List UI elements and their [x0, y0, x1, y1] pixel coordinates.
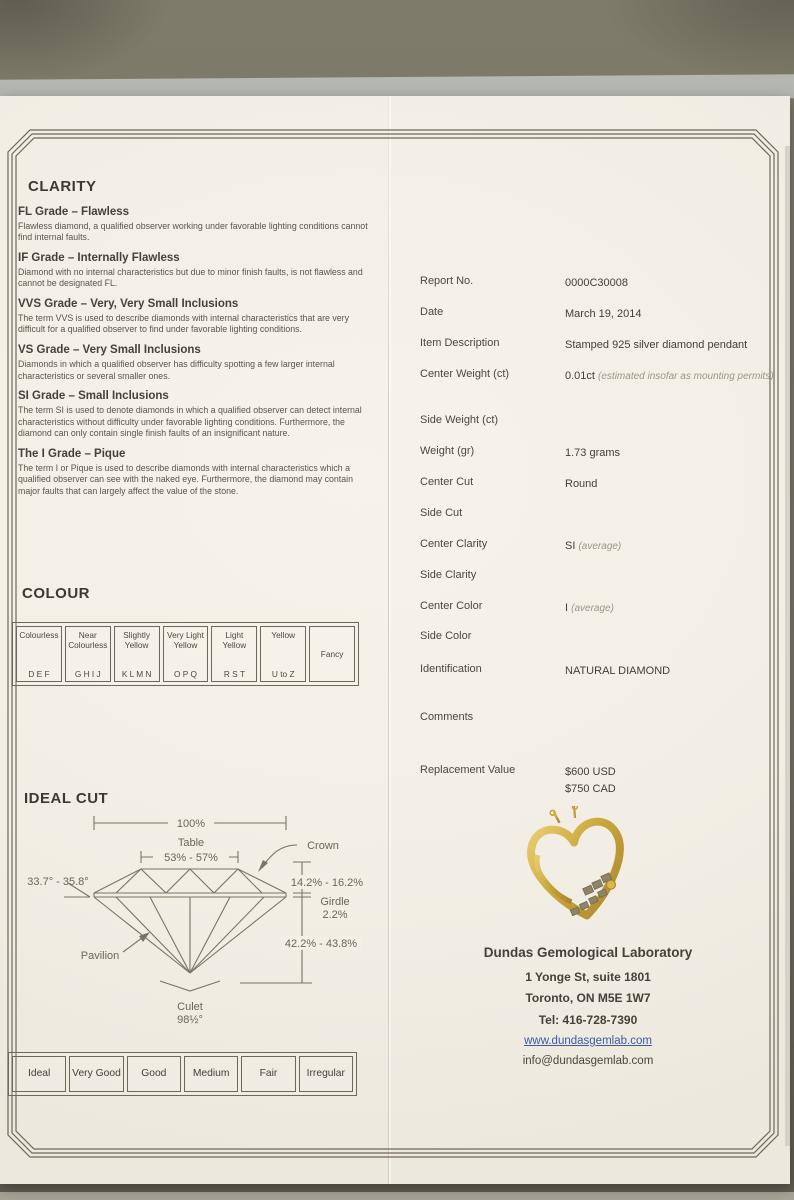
row-value: I (average) — [565, 600, 780, 617]
colour-cell-label: Fancy — [321, 649, 344, 659]
culet-angle-label: 98½° — [177, 1014, 203, 1026]
lab-contact-block: Dundas Gemological Laboratory 1 Yonge St… — [420, 945, 756, 1071]
colour-cell-very-light-yellow: Very Light Yellow O P Q — [163, 626, 209, 682]
grade-fl: FL Grade – Flawless Flawless diamond, a … — [18, 205, 376, 244]
colour-cell-label: Light Yellow — [213, 630, 255, 651]
cut-grade-irregular: Irregular — [299, 1056, 353, 1092]
paper-right-edge — [785, 146, 790, 1146]
colour-cell-label: Slightly Yellow — [116, 630, 158, 651]
colour-cell-letters: K L M N — [122, 668, 152, 679]
crown-height-label: 14.2% - 16.2% — [291, 877, 363, 889]
lab-phone: Tel: 416-728-7390 — [420, 1010, 756, 1031]
cut-grade-very-good: Very Good — [69, 1056, 123, 1092]
row-label: Weight (gr) — [420, 445, 562, 457]
row-label: Comments — [420, 711, 562, 723]
crown-angle-label: 33.7° - 35.8° — [27, 876, 88, 888]
grade-si: SI Grade – Small Inclusions The term SI … — [18, 389, 376, 440]
colour-heading: COLOUR — [22, 585, 90, 602]
grade-fl-desc: Flawless diamond, a qualified observer w… — [18, 221, 376, 245]
grade-vs: VS Grade – Very Small Inclusions Diamond… — [18, 343, 376, 382]
grade-if-name: IF Grade – Internally Flawless — [18, 251, 376, 267]
photo-of-certificate: { "colors": { "backdrop": "#79756 4", "p… — [0, 0, 794, 1200]
grade-vvs-name: VVS Grade – Very, Very Small Inclusions — [18, 297, 376, 313]
row-value: Round — [565, 476, 780, 493]
lab-address1: 1 Yonge St, suite 1801 — [420, 967, 756, 988]
pendant-photo — [505, 806, 655, 946]
row-label: Side Color — [420, 630, 562, 642]
cut-grade-table: Ideal Very Good Good Medium Fair Irregul… — [8, 1052, 357, 1096]
colour-cell-letters: U to Z — [272, 668, 295, 679]
grade-i: The I Grade – Pique The term I or Pique … — [18, 447, 376, 498]
pavilion-label: Pavilion — [81, 950, 120, 962]
grade-i-desc: The term I or Pique is used to describe … — [18, 463, 376, 498]
row-label: Report No. — [420, 275, 562, 287]
replacement-cad: $750 CAD — [565, 781, 780, 798]
row-label: Replacement Value — [420, 764, 562, 776]
row-value-note: (average) — [578, 541, 621, 552]
colour-cell-label: Very Light Yellow — [165, 630, 207, 651]
lab-address2: Toronto, ON M5E 1W7 — [420, 988, 756, 1009]
grade-vs-desc: Diamonds in which a qualified observer h… — [18, 359, 376, 383]
colour-cell-letters: R S T — [224, 668, 245, 679]
row-value: SI (average) — [565, 538, 780, 555]
cut-grade-fair: Fair — [241, 1056, 295, 1092]
grade-vvs: VVS Grade – Very, Very Small Inclusions … — [18, 297, 376, 336]
culet-label: Culet — [177, 1001, 203, 1013]
row-value-main: I — [565, 602, 568, 614]
row-value: 1.73 grams — [565, 445, 780, 462]
dim-total-label: 100% — [177, 818, 205, 830]
colour-cell-near-colourless: Near Colourless G H I J — [65, 626, 111, 682]
lab-website-link: www.dundasgemlab.com — [420, 1031, 756, 1052]
row-label: Item Description — [420, 337, 562, 349]
cut-grade-ideal: Ideal — [12, 1056, 66, 1092]
row-value: NATURAL DIAMOND — [565, 663, 780, 680]
colour-cell-yellow: Yellow U to Z — [260, 626, 306, 682]
colour-cell-colourless: Colourless D E F — [16, 626, 62, 682]
grade-if: IF Grade – Internally Flawless Diamond w… — [18, 251, 376, 290]
row-value-main: 0.01ct — [565, 370, 595, 382]
colour-scale-table: Colourless D E F Near Colourless G H I J… — [12, 622, 359, 686]
clarity-heading: CLARITY — [28, 178, 97, 195]
grade-vs-name: VS Grade – Very Small Inclusions — [18, 343, 376, 359]
row-label: Center Color — [420, 600, 562, 612]
row-value: Stamped 925 silver diamond pendant — [565, 337, 780, 354]
grade-si-desc: The term SI is used to denote diamonds i… — [18, 405, 376, 440]
grade-si-name: SI Grade – Small Inclusions — [18, 389, 376, 405]
girdle-pct-label: 2.2% — [322, 909, 347, 921]
dim-table-label: Table — [178, 837, 204, 849]
crown-label: Crown — [307, 840, 339, 852]
grade-vvs-desc: The term VVS is used to describe diamond… — [18, 313, 376, 337]
lab-name: Dundas Gemological Laboratory — [420, 945, 756, 960]
colour-cell-slightly-yellow: Slightly Yellow K L M N — [114, 626, 160, 682]
colour-cell-fancy: Fancy — [309, 626, 355, 682]
row-value: 0.01ct (estimated insofar as mounting pe… — [565, 368, 780, 385]
colour-cell-label: Yellow — [271, 630, 295, 640]
girdle-label: Girdle — [320, 896, 349, 908]
grade-if-desc: Diamond with no internal characteristics… — [18, 267, 376, 291]
grade-i-name: The I Grade – Pique — [18, 447, 376, 463]
row-value-note: (estimated insofar as mounting permits) — [598, 371, 774, 382]
colour-cell-letters: O P Q — [174, 668, 197, 679]
certificate-paper: CLARITY FL Grade – Flawless Flawless dia… — [0, 96, 790, 1184]
table-surface-edge — [0, 1192, 794, 1200]
row-value-main: SI — [565, 540, 575, 552]
colour-cell-letters: D E F — [28, 668, 49, 679]
row-value: March 19, 2014 — [565, 306, 780, 323]
row-label: Identification — [420, 663, 562, 675]
row-label: Side Cut — [420, 507, 562, 519]
replacement-usd: $600 USD — [565, 764, 780, 781]
row-value: 0000C30008 — [565, 275, 780, 292]
row-label: Center Clarity — [420, 538, 562, 550]
colour-cell-label: Near Colourless — [67, 630, 109, 651]
row-label: Center Cut — [420, 476, 562, 488]
colour-cell-light-yellow: Light Yellow R S T — [211, 626, 257, 682]
ideal-cut-diagram: 100% Table 53% - 57% Crown 33.7° - 35.8°… — [10, 805, 385, 1035]
row-value-note: (average) — [571, 603, 614, 614]
lab-email: info@dundasgemlab.com — [420, 1052, 756, 1072]
row-label: Side Clarity — [420, 569, 562, 581]
grade-fl-name: FL Grade – Flawless — [18, 205, 376, 221]
dim-table-range-label: 53% - 57% — [164, 852, 218, 864]
row-label: Date — [420, 306, 562, 318]
pavilion-depth-label: 42.2% - 43.8% — [285, 938, 357, 950]
colour-cell-letters: G H I J — [75, 668, 101, 679]
clarity-grade-list: FL Grade – Flawless Flawless diamond, a … — [18, 205, 376, 505]
colour-cell-label: Colourless — [19, 630, 58, 640]
cut-grade-good: Good — [127, 1056, 181, 1092]
cut-grade-medium: Medium — [184, 1056, 238, 1092]
row-value: $600 USD $750 CAD — [565, 764, 780, 798]
row-label: Side Weight (ct) — [420, 414, 562, 426]
row-label: Center Weight (ct) — [420, 368, 562, 380]
